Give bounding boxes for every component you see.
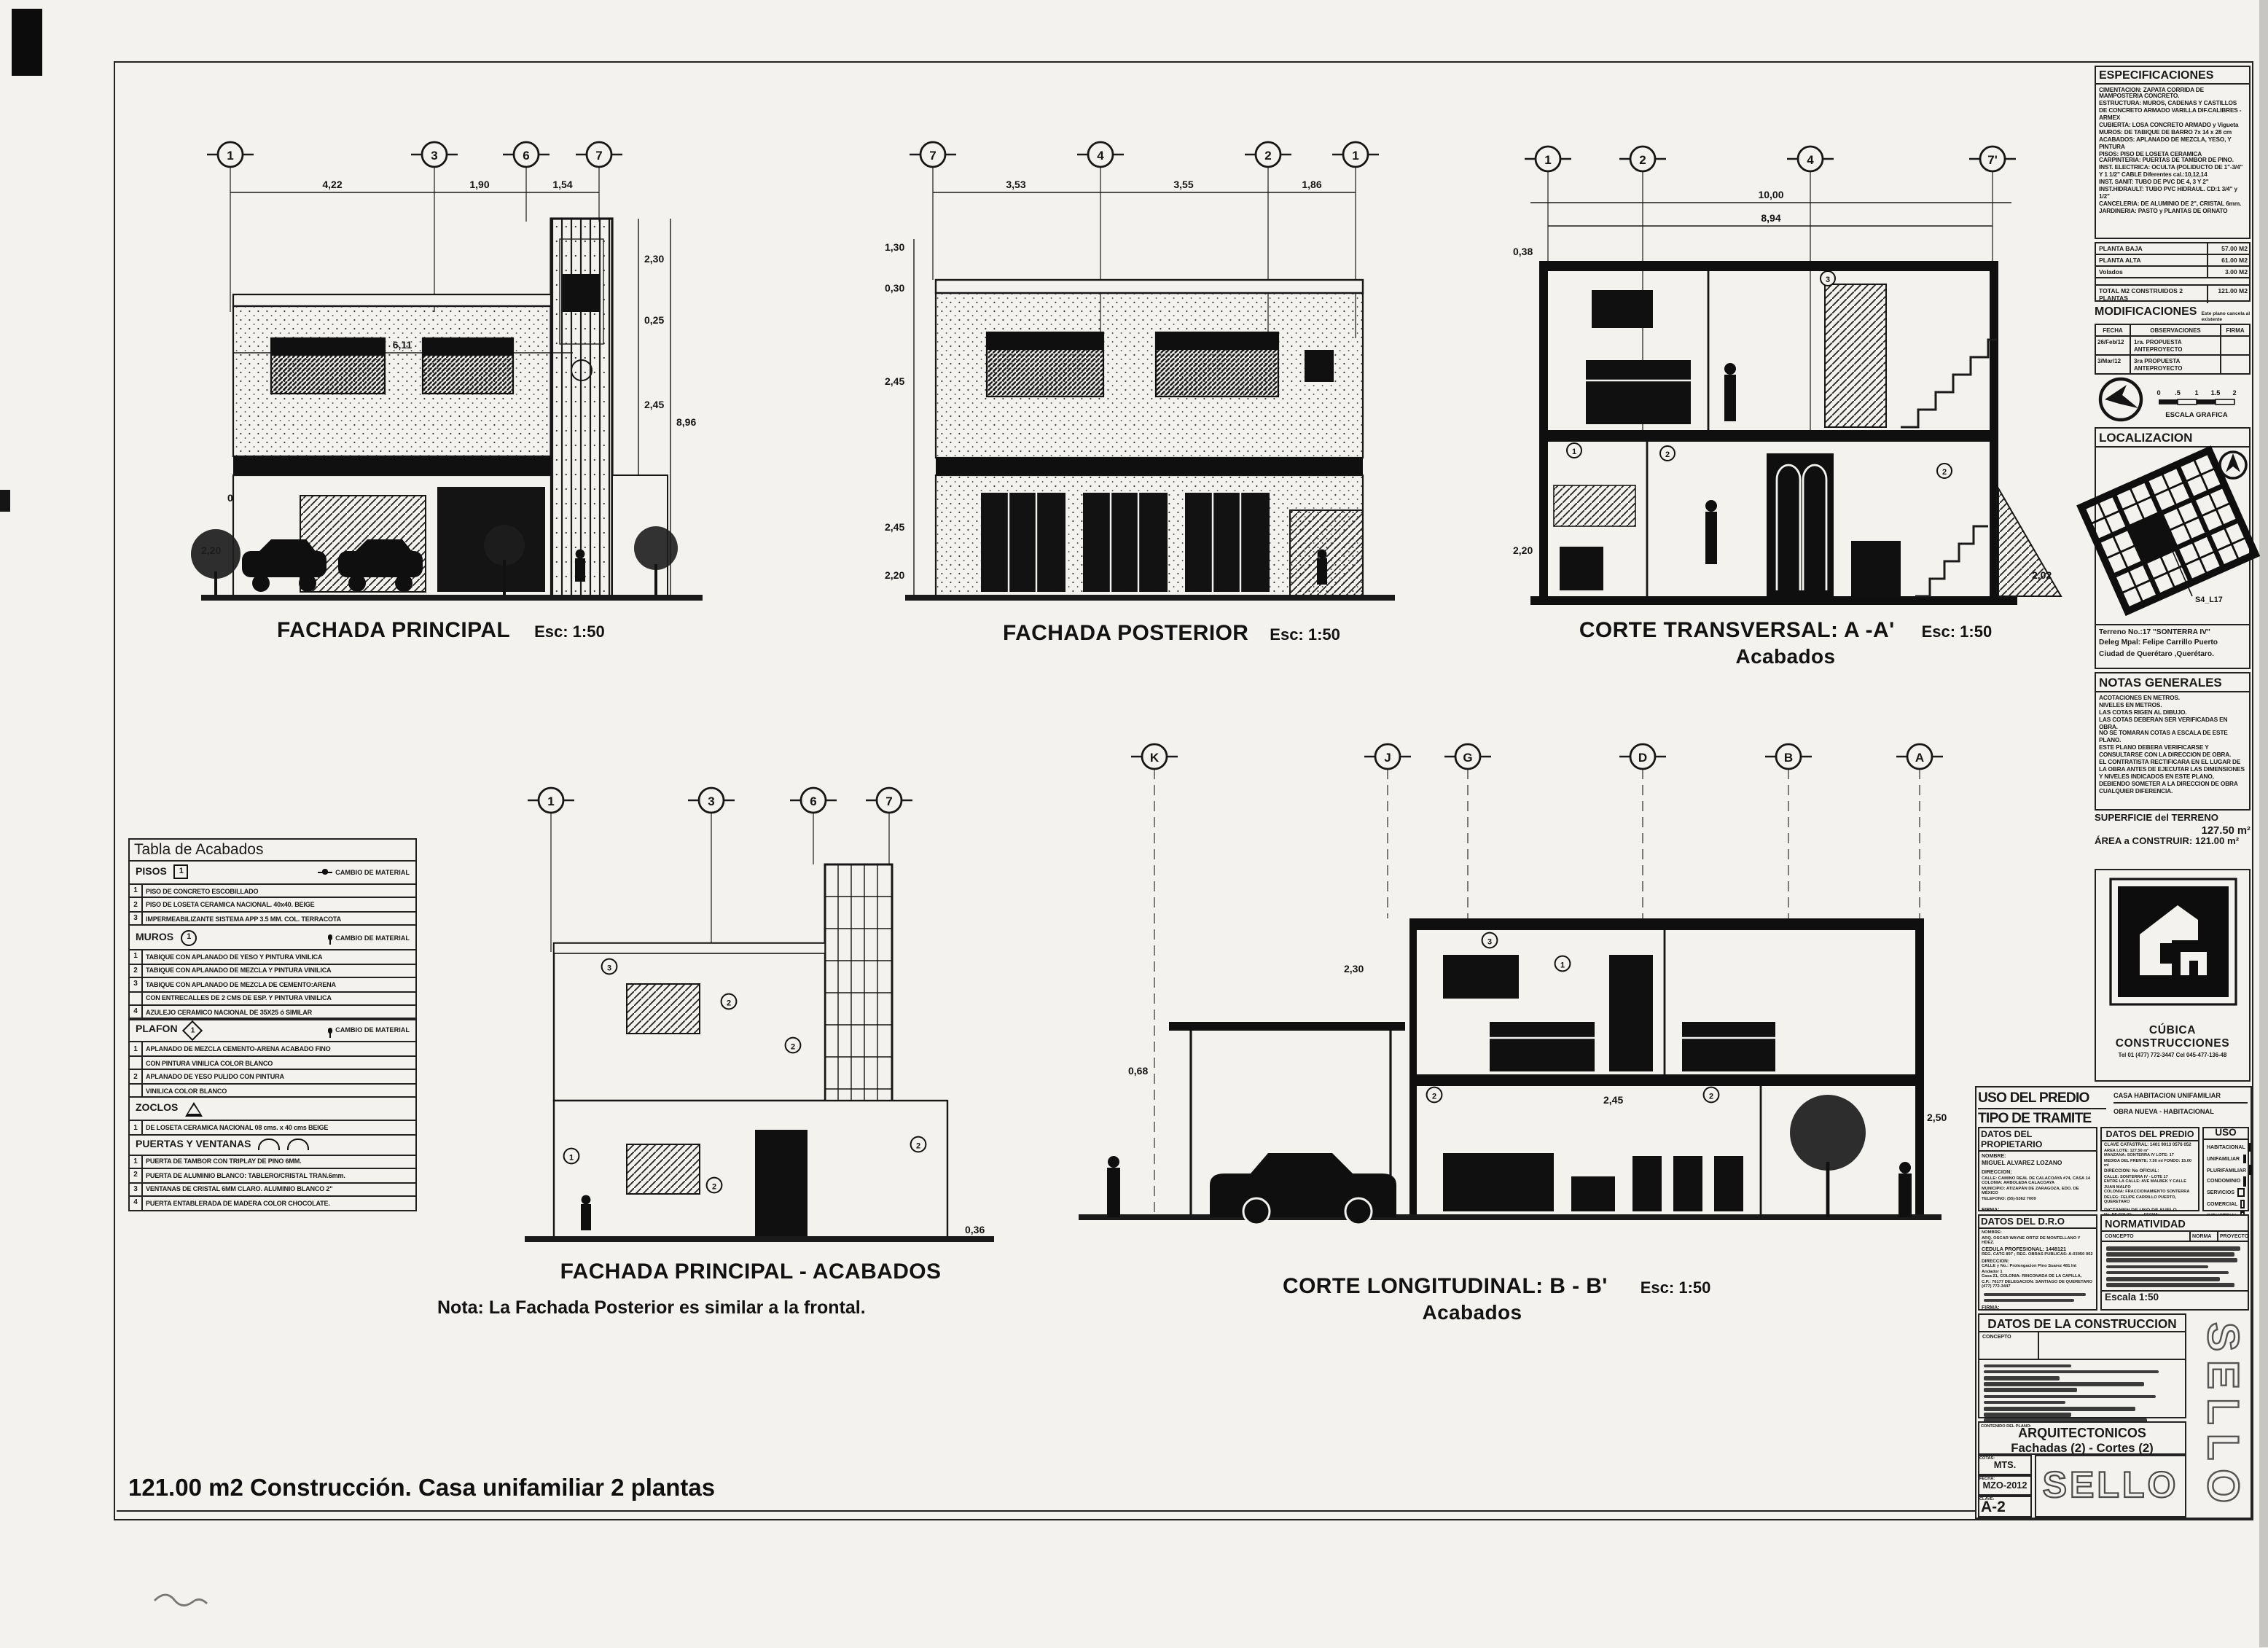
uso-item: HABITACIONAL	[2207, 1142, 2245, 1151]
table-row-total: TOTAL M2 CONSTRUIDOS 2 PLANTAS121.00 M2	[2096, 284, 2249, 303]
map-north-icon	[2220, 452, 2246, 478]
svg-text:4: 4	[1807, 153, 1814, 167]
svg-text:1.5: 1.5	[2211, 389, 2221, 397]
north-arrow-icon	[2100, 379, 2141, 420]
material-change-icon	[318, 871, 332, 872]
section-zoclos: ZOCLOS	[130, 1097, 415, 1122]
fachada-principal-drawing: 1 3 6 7 4,22 1,90 1,54 6,11 2,30 0,25 2,…	[143, 134, 726, 637]
terreno-line: Terreno No.:17 "SONTERRA IV"	[2096, 625, 2249, 639]
svg-text:8,96: 8,96	[676, 416, 696, 428]
triangle-tag-symbol	[185, 1102, 203, 1117]
company-logo	[2096, 870, 2249, 1016]
svg-text:4,22: 4,22	[322, 179, 342, 190]
company-contact: Tel 01 (477) 772-3447 Cel 045-477-136-48	[2096, 1051, 2249, 1058]
north-and-scalebar: 0 .5 1 1.5 2 ESCALA GRAFICA	[2095, 373, 2251, 426]
superficie-label: SUPERFICIE del TERRENO	[2095, 813, 2251, 824]
tabla-acabados-title: Tabla de Acabados	[130, 840, 415, 862]
construction-summary: 121.00 m2 Construcción. Casa unifamiliar…	[128, 1475, 715, 1503]
svg-text:2: 2	[1665, 450, 1670, 459]
graphic-scale: 0 .5 1 1.5 2 ESCALA GRAFICA	[2156, 389, 2236, 419]
building-outline: 0,36	[525, 864, 994, 1239]
svg-text:0: 0	[2156, 389, 2160, 397]
spec-line: JARDINERIA: PASTO y PLANTAS DE ORNATO	[2099, 208, 2246, 215]
svg-text:2: 2	[916, 1141, 920, 1150]
upper-floor-interior	[1586, 271, 1997, 430]
svg-text:2: 2	[791, 1042, 795, 1051]
superficie-block: SUPERFICIE del TERRENO 127.50 m² ÁREA a …	[2095, 813, 2251, 847]
corte-transversal-title: CORTE TRANSVERSAL: A -A'	[1579, 618, 1895, 643]
svg-text:8,94: 8,94	[1761, 212, 1780, 224]
svg-text:0,36: 0,36	[965, 1224, 985, 1235]
uso-item: PLURIFAMILIAR	[2207, 1165, 2245, 1174]
svg-text:2,45: 2,45	[885, 375, 904, 387]
escala-label: Escala 1:50	[2102, 1291, 2248, 1305]
normatividad-title: NORMATIVIDAD	[2102, 1216, 2248, 1232]
svg-text:1,90: 1,90	[469, 179, 489, 190]
tabla-acabados: Tabla de Acabados PISOS 1 CAMBIO DE MATE…	[128, 838, 417, 1211]
svg-text:3,55: 3,55	[1173, 179, 1193, 190]
corte-longitudinal-subtitle: Acabados	[1283, 1300, 1662, 1324]
predio-title: DATOS DEL PREDIO	[2102, 1128, 2198, 1141]
section-plafon: PLAFON 1 CAMBIO DE MATERIAL	[130, 1018, 415, 1043]
svg-text:2: 2	[1709, 1092, 1713, 1101]
street-grid	[2081, 450, 2256, 612]
svg-text:J: J	[1384, 751, 1391, 765]
notas-title: NOTAS GENERALES	[2096, 673, 2249, 692]
checkbox	[2249, 1165, 2252, 1174]
svg-text:10,00: 10,00	[1758, 189, 1783, 200]
dro-title: DATOS DEL D.R.O	[1979, 1216, 2096, 1229]
svg-text:3: 3	[431, 149, 437, 163]
building-elevation	[191, 219, 703, 598]
scan-squiggle	[152, 1589, 210, 1609]
illegible-note	[1983, 1292, 2085, 1296]
svg-text:G: G	[1463, 751, 1472, 765]
fecha-label: FECHA:	[1979, 1477, 2030, 1482]
svg-text:2: 2	[1639, 153, 1646, 167]
corte-transversal-caption: CORTE TRANSVERSAL: A -A' Esc: 1:50 Acaba…	[1545, 618, 2026, 668]
svg-text:2,20: 2,20	[885, 569, 904, 581]
svg-text:D: D	[1638, 751, 1647, 765]
table-row: 4PUERTA ENTABLERADA DE MADERA COLOR CHOC…	[130, 1197, 415, 1209]
svg-text:7: 7	[885, 794, 892, 808]
fachada-acabados-drawing: 1 3 6 7	[481, 780, 1020, 1268]
svg-text:3,53: 3,53	[1006, 179, 1025, 190]
svg-text:3: 3	[607, 964, 611, 972]
square-tag-symbol: 1	[174, 865, 189, 880]
table-row: 2APLANADO DE YESO PULIDO CON PINTURA	[130, 1071, 415, 1085]
svg-text:1: 1	[1352, 149, 1358, 163]
svg-text:2,45: 2,45	[1603, 1094, 1623, 1106]
svg-text:2: 2	[1264, 149, 1271, 163]
area-construir: ÁREA a CONSTRUIR: 121.00 m²	[2095, 837, 2251, 847]
col-concepto: CONCEPTO	[2102, 1232, 2189, 1241]
svg-text:2,30: 2,30	[1344, 963, 1364, 975]
svg-text:6: 6	[523, 149, 529, 163]
table-row: PLANTA BAJA57.00 M2	[2096, 243, 2249, 255]
company-name: CÚBICA CONSTRUCCIONES	[2096, 1023, 2249, 1050]
dro-line: (477) 772-3447	[1982, 1285, 2094, 1290]
sheet-number: A-2	[1979, 1502, 2030, 1515]
scan-artifact-topleft	[12, 9, 42, 76]
fachada-posterior-title: FACHADA POSTERIOR	[1003, 621, 1248, 646]
illegible-table-rows	[2102, 1243, 2248, 1291]
table-row: Volados3.00 M2	[2096, 267, 2249, 278]
sello-vertical: SELLO	[2197, 1322, 2246, 1512]
checkbox	[2243, 1177, 2246, 1186]
firma-label: FIRMA:	[1982, 1305, 2094, 1312]
svg-text:2,30: 2,30	[644, 253, 664, 265]
door-arch-symbol	[258, 1139, 280, 1150]
svg-text:1,30: 1,30	[885, 241, 904, 253]
svg-text:.5: .5	[2175, 389, 2181, 397]
checkbox	[2242, 1154, 2245, 1163]
svg-text:6: 6	[810, 794, 816, 808]
tramite-labels: USO DEL PREDIO TIPO DE TRAMITE	[1978, 1089, 2106, 1128]
svg-text:ESCALA GRAFICA: ESCALA GRAFICA	[2165, 411, 2228, 419]
table-row: 1APLANADO DE MEZCLA CEMENTO-ARENA ACABAD…	[130, 1043, 415, 1057]
col-concepto: CONCEPTO	[1979, 1332, 2039, 1359]
col-proyecto: PROYECTO	[2217, 1232, 2248, 1241]
uso-item: CONDOMINIO	[2207, 1177, 2245, 1186]
especificaciones-title: ESPECIFICACIONES	[2096, 67, 2249, 85]
fachada-posterior-scale: Esc: 1:50	[1270, 627, 1340, 644]
sello-vertical-area: SELLO	[2192, 1316, 2251, 1518]
section-puertas: PUERTAS Y VENTANAS	[130, 1133, 415, 1155]
upper-floor-interior	[1443, 930, 1775, 1074]
corte-transversal-subtitle: Acabados	[1545, 644, 2026, 668]
diamond-tag-symbol: 1	[181, 1020, 202, 1041]
circle-tag-symbol: 1	[181, 929, 197, 945]
contenido-label: CONTENIDO DEL PLANO:	[1981, 1424, 2031, 1429]
construccion-title: DATOS DE LA CONSTRUCCION	[1979, 1315, 2185, 1332]
propietario-title: DATOS DEL PROPIETARIO	[1979, 1128, 2096, 1152]
normatividad-box: NORMATIVIDAD CONCEPTO NORMA PROYECTO Esc…	[2100, 1214, 2249, 1311]
fachada-principal-scale: Esc: 1:50	[534, 624, 605, 641]
corte-transversal-scale: Esc: 1:50	[1922, 624, 1993, 641]
ciudad-line: Ciudad de Querétaro ,Querétaro.	[2096, 650, 2249, 662]
table-row: 1TABIQUE CON APLANADO DE YESO Y PINTURA …	[130, 950, 415, 964]
svg-text:7': 7'	[1987, 153, 1998, 167]
table-row: 3TABIQUE CON APLANADO DE MEZCLA DE CEMEN…	[130, 978, 415, 992]
modificaciones-block: MODIFICACIONES Este plano cancela al exi…	[2095, 305, 2251, 375]
especificaciones-box: ESPECIFICACIONES CIMENTACION: ZAPATA COR…	[2095, 66, 2251, 239]
uso-item: COMERCIAL	[2207, 1200, 2245, 1208]
svg-text:2: 2	[727, 999, 731, 1007]
svg-text:0,68: 0,68	[1128, 1065, 1148, 1077]
location-map: S4_L17	[2096, 448, 2249, 617]
svg-text:1: 1	[569, 1153, 574, 1162]
svg-text:B: B	[1784, 751, 1793, 765]
svg-text:3: 3	[1826, 276, 1830, 284]
lower-floor-interior	[1443, 1086, 1866, 1217]
svg-text:1: 1	[2194, 389, 2198, 397]
sello-box: SELLO	[2035, 1455, 2186, 1518]
svg-text:2: 2	[1942, 468, 1947, 477]
datos-construccion-box: DATOS DE LA CONSTRUCCION CONCEPTO	[1978, 1313, 2186, 1418]
fachada-acabados-note: Nota: La Fachada Posterior es similar a …	[437, 1294, 866, 1321]
window-arch-symbol	[287, 1139, 309, 1150]
checkbox	[2237, 1188, 2245, 1197]
uso-item: SERVICIOS	[2207, 1188, 2245, 1197]
deleg-line: Deleg Mpal: Felipe Carrillo Puerto	[2096, 639, 2249, 651]
tipo-tramite-value: OBRA NUEVA - HABITACIONAL	[2113, 1104, 2248, 1115]
corte-longitudinal-drawing: K J G D B A	[1052, 736, 1956, 1276]
fachada-acabados-caption: FACHADA PRINCIPAL - ACABADOS	[481, 1260, 1020, 1284]
corte-longitudinal-caption: CORTE LONGITUDINAL: B - B' Esc: 1:50 Aca…	[1283, 1274, 1710, 1324]
cotas-label: COTAS:	[1979, 1456, 2030, 1461]
dro-line: REG. CATG 897 ; REG. OBRAS PUBLICAS: A-0…	[1982, 1253, 2094, 1258]
corte-transversal-drawing: 1 2 4 7' 10,00 8,94 0,38 2,20 2,02	[1490, 138, 2073, 649]
tipo-tramite-label: TIPO DE TRAMITE	[1978, 1109, 2106, 1128]
bottom-rule	[117, 1510, 2248, 1512]
svg-text:1: 1	[1544, 153, 1551, 167]
svg-text:2,45: 2,45	[885, 521, 904, 533]
predio-line: DELEG: FELIPE CARRILLO PUERTO, QUERETARO	[2104, 1195, 2196, 1205]
table-row: 1PISO DE CONCRETO ESCOBILLADO	[130, 885, 415, 899]
table-row: PLANTA ALTA61.00 M2	[2096, 255, 2249, 267]
modificaciones-note: Este plano cancela al existente	[2201, 311, 2251, 322]
plano-contenido-sub: Fachadas (2) - Cortes (2)	[1979, 1440, 2185, 1455]
superficie-value: 127.50 m²	[2095, 824, 2251, 837]
section-muros: MUROS 1 CAMBIO DE MATERIAL	[130, 924, 415, 950]
nombre-value: MIGUEL ALVAREZ LOZANO	[1982, 1160, 2094, 1168]
direccion-line: TELEFONO: (55)-5362 7009	[1982, 1197, 2094, 1202]
svg-text:K: K	[1150, 751, 1160, 765]
fachada-principal-caption: FACHADA PRINCIPAL Esc: 1:50	[277, 618, 605, 644]
table-row: 26/Feb/12 1ra. PROPUESTA ANTEPROYECTO	[2096, 337, 2249, 356]
svg-text:1: 1	[547, 794, 554, 808]
section-pisos: PISOS 1 CAMBIO DE MATERIAL	[130, 860, 415, 885]
fachada-principal-title: FACHADA PRINCIPAL	[277, 618, 510, 643]
svg-text:3: 3	[708, 794, 714, 808]
localizacion-title: LOCALIZACION	[2096, 429, 2249, 448]
svg-text:7: 7	[595, 149, 602, 163]
svg-text:7: 7	[929, 149, 936, 163]
sello-stamp: SELLO	[2043, 1465, 2179, 1507]
svg-text:3: 3	[1487, 937, 1492, 946]
svg-text:0,30: 0,30	[885, 282, 904, 294]
uso-del-predio-label: USO DEL PREDIO	[1978, 1089, 2106, 1109]
fachada-posterior-caption: FACHADA POSTERIOR Esc: 1:50	[1003, 621, 1340, 647]
datos-predio-box: DATOS DEL PREDIO CLAVE CATASTRAL: 1401 9…	[2100, 1127, 2199, 1211]
svg-text:2: 2	[712, 1182, 716, 1191]
table-row: 2PISO DE LOSETA CERAMICA NACIONAL. 40x40…	[130, 899, 415, 913]
car-silhouette	[1210, 1153, 1396, 1225]
nombre-label: NOMBRE:	[1982, 1153, 2094, 1160]
table-row: CON PINTURA VINILICA COLOR BLANCO	[130, 1057, 415, 1071]
lower-floor-interior	[1554, 442, 2061, 596]
clave-box: CLAVE: A-2	[1978, 1496, 2032, 1518]
spec-line: INST.HIDRAULT: TUBO PVC HIDRAUL. CD:1 3/…	[2099, 187, 2246, 201]
svg-text:A: A	[1915, 751, 1924, 765]
checkbox	[2248, 1142, 2251, 1151]
dro-line: ARQ. OSCAR WAYNE ORTIZ DE MONTELLANO Y H…	[1982, 1235, 2094, 1246]
material-change-pin-icon	[327, 1028, 332, 1033]
corte-longitudinal-title: CORTE LONGITUDINAL: B - B'	[1283, 1274, 1608, 1299]
lot-label: S4_L17	[2195, 595, 2223, 604]
material-change-pin-icon	[327, 935, 332, 940]
tramite-values: CASA HABITACION UNIFAMILIAR OBRA NUEVA -…	[2113, 1092, 2248, 1115]
spec-line: MUROS: DE TABIQUE DE BARRO 7x 14 x 28 cm…	[2099, 130, 2246, 151]
company-block: CÚBICA CONSTRUCCIONES Tel 01 (477) 772-3…	[2095, 869, 2251, 1082]
areas-table: PLANTA BAJA57.00 M2 PLANTA ALTA61.00 M2 …	[2095, 242, 2251, 302]
uso-title: USO	[2204, 1128, 2248, 1140]
fachada-acabados-title: FACHADA PRINCIPAL - ACABADOS	[481, 1260, 1020, 1284]
svg-text:1,86: 1,86	[1302, 179, 1321, 190]
fachada-posterior-drawing: 7 4 2 1 3,53 3,55 1,86 1,30 0,30 2,45 2,…	[853, 134, 1436, 637]
scan-artifact-left	[0, 490, 10, 512]
svg-text:4: 4	[1097, 149, 1104, 163]
building-elevation	[905, 280, 1395, 598]
spec-line: ESTRUCTURA: MUROS, CADENAS Y CASTILLOS D…	[2099, 101, 2246, 122]
svg-text:2: 2	[1432, 1092, 1436, 1101]
illegible-headers	[2039, 1332, 2185, 1359]
table-row: 3VENTANAS DE CRISTAL 6MM CLARO. ALUMINIO…	[130, 1183, 415, 1197]
svg-text:1: 1	[1572, 448, 1576, 456]
svg-text:2,50: 2,50	[1927, 1112, 1947, 1123]
cotas-box: COTAS: MTS.	[1978, 1455, 2032, 1475]
table-row: CON ENTRECALLES DE 2 CMS DE ESP. Y PINTU…	[130, 992, 415, 1006]
scan-edge-strip	[2259, 0, 2268, 1647]
table-row: 2PUERTA DE ALUMINIO BLANCO: TABLERO/CRIS…	[130, 1169, 415, 1183]
svg-text:0,25: 0,25	[644, 314, 664, 326]
svg-text:2,20: 2,20	[1513, 544, 1533, 556]
nota-line: EL CONTRATISTA RECTIFICARA EN EL LUGAR D…	[2099, 759, 2246, 795]
checkbox	[2240, 1200, 2245, 1208]
illegible-note	[1983, 1299, 2073, 1303]
table-row: 3/Mar/12 3ra PROPUESTA ANTEPROYECTO	[2096, 356, 2249, 373]
firma-label: FIRMA:	[1982, 1206, 2094, 1213]
person-figure	[575, 550, 585, 582]
svg-text:0,38: 0,38	[1513, 246, 1533, 257]
svg-text:1: 1	[227, 149, 233, 163]
fecha-value: MZO-2012	[1979, 1482, 2030, 1492]
datos-propietario-box: DATOS DEL PROPIETARIO NOMBRE: MIGUEL ALV…	[1978, 1127, 2097, 1211]
svg-text:1: 1	[1560, 961, 1565, 969]
datos-dro-box: DATOS DEL D.R.O NOMBRE: ARQ. OSCAR WAYNE…	[1978, 1214, 2097, 1311]
svg-text:1,54: 1,54	[552, 179, 572, 190]
col-norma: NORMA	[2189, 1232, 2217, 1241]
cotas-value: MTS.	[1979, 1461, 2030, 1472]
uso-del-predio-value: CASA HABITACION UNIFAMILIAR	[2113, 1092, 2248, 1104]
table-row: 2TABIQUE CON APLANADO DE MEZCLA Y PINTUR…	[130, 964, 415, 978]
table-header: FECHA OBSERVACIONES FIRMA	[2096, 325, 2249, 337]
contenido-box: CONTENIDO DEL PLANO: ARQUITECTONICOS Fac…	[1978, 1421, 2186, 1455]
localizacion-box: LOCALIZACION	[2095, 427, 2251, 669]
svg-text:2,45: 2,45	[644, 399, 664, 410]
uso-checkbox-table: USO HABITACIONAL UNIFAMILIAR PLURIFAMILI…	[2202, 1127, 2249, 1211]
svg-text:2: 2	[2232, 389, 2236, 397]
uso-item: UNIFAMILIAR	[2207, 1154, 2245, 1163]
modificaciones-title: MODIFICACIONES	[2095, 305, 2197, 318]
fecha-box: FECHA: MZO-2012	[1978, 1475, 2032, 1496]
plan-sheet: 1 3 6 7 4,22 1,90 1,54 6,11 2,30 0,25 2,…	[0, 0, 2268, 1648]
corte-longitudinal-scale: Esc: 1:50	[1641, 1280, 1711, 1297]
table-row: 1PUERTA DE TAMBOR CON TRIPLAY DE PINO 6M…	[130, 1155, 415, 1169]
notas-generales-box: NOTAS GENERALES ACOTACIONES EN METROS. N…	[2095, 672, 2251, 811]
